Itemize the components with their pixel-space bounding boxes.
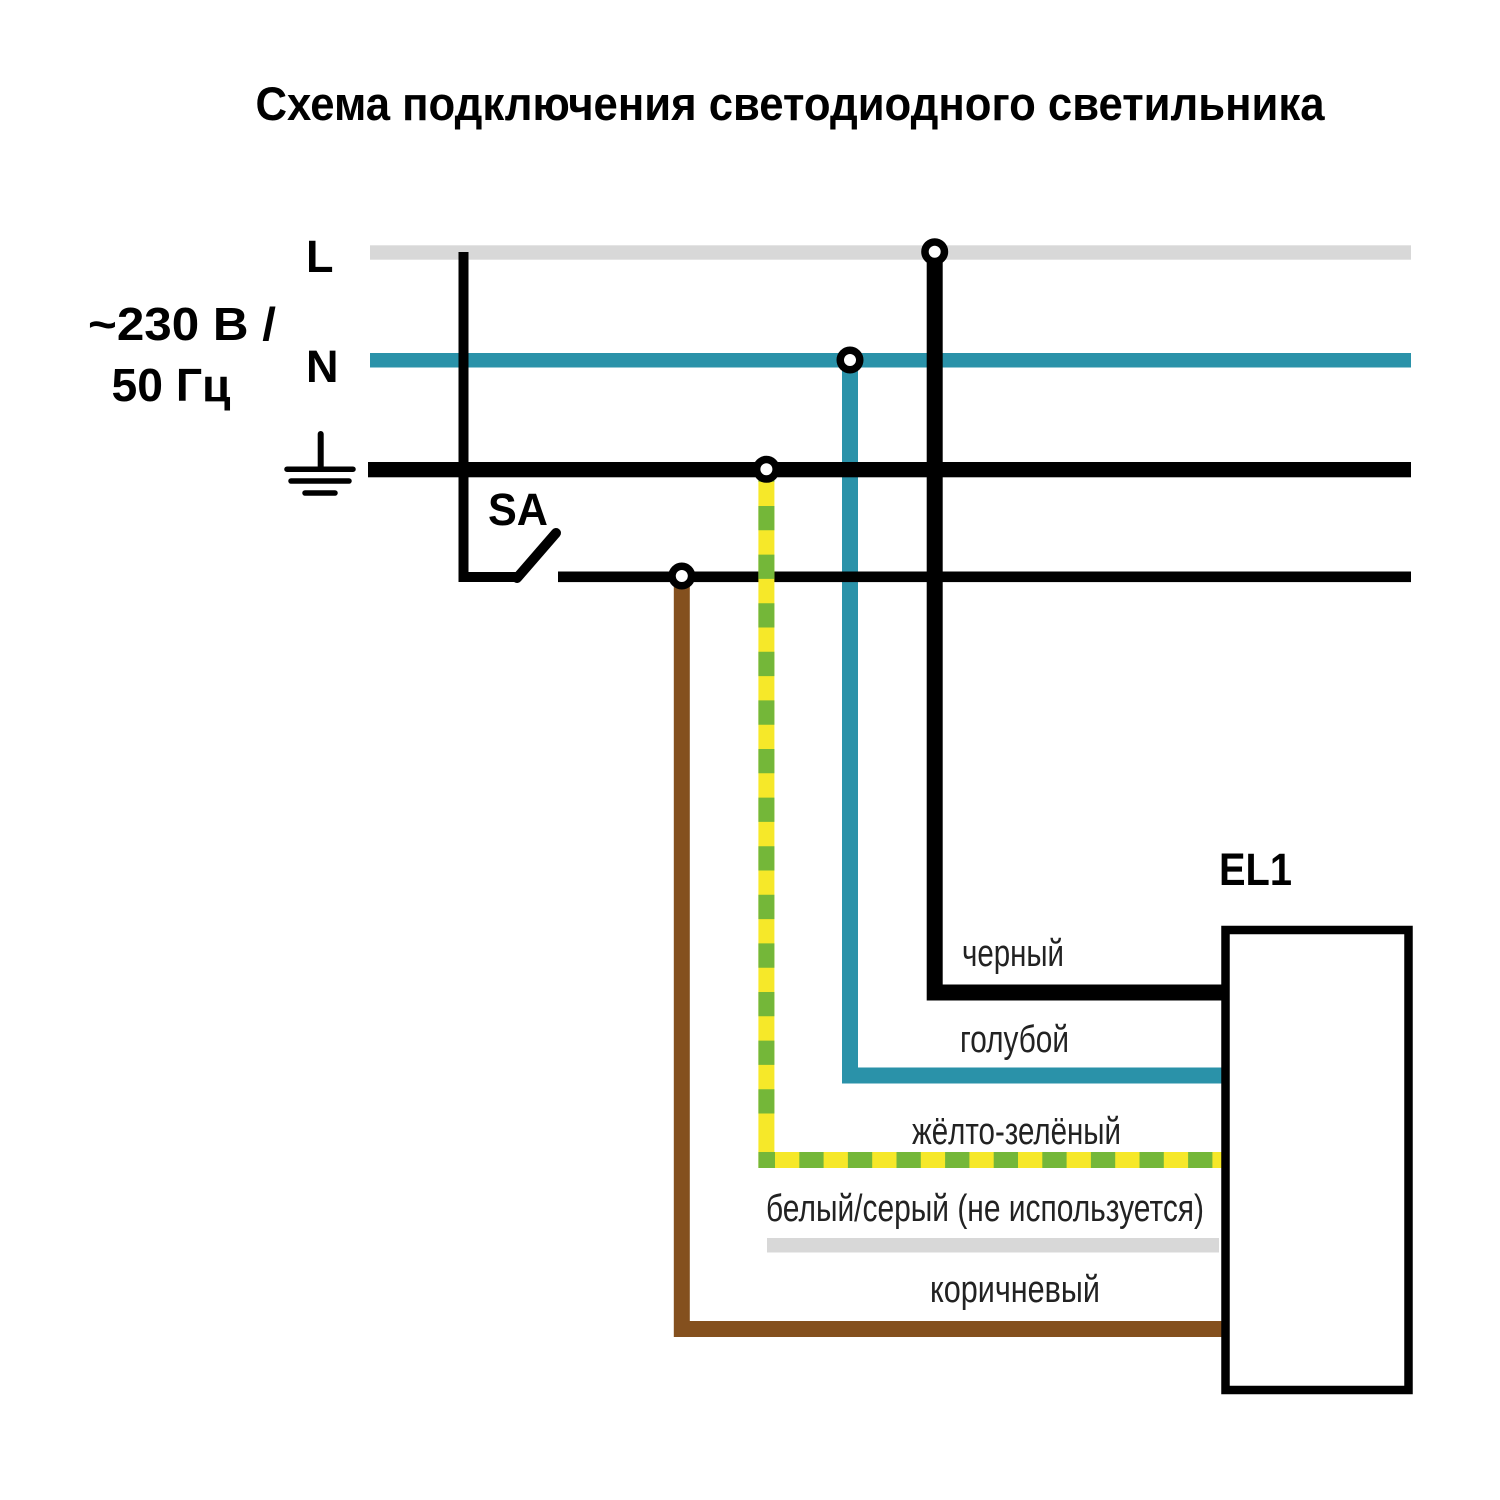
svg-text:L: L	[306, 231, 334, 282]
svg-text:EL1: EL1	[1219, 844, 1292, 895]
svg-text:SA: SA	[488, 484, 548, 535]
svg-text:коричневый: коричневый	[930, 1269, 1100, 1311]
svg-text:голубой: голубой	[960, 1019, 1069, 1061]
svg-text:N: N	[306, 341, 339, 392]
svg-text:50 Гц: 50 Гц	[112, 359, 231, 411]
svg-text:~230 В /: ~230 В /	[88, 298, 276, 350]
svg-text:Схема подключения светодиодног: Схема подключения светодиодного светильн…	[256, 77, 1326, 130]
svg-text:белый/серый (не используется): белый/серый (не используется)	[766, 1188, 1204, 1230]
svg-text:черный: черный	[962, 933, 1064, 975]
svg-text:жёлто-зелёный: жёлто-зелёный	[912, 1111, 1121, 1153]
